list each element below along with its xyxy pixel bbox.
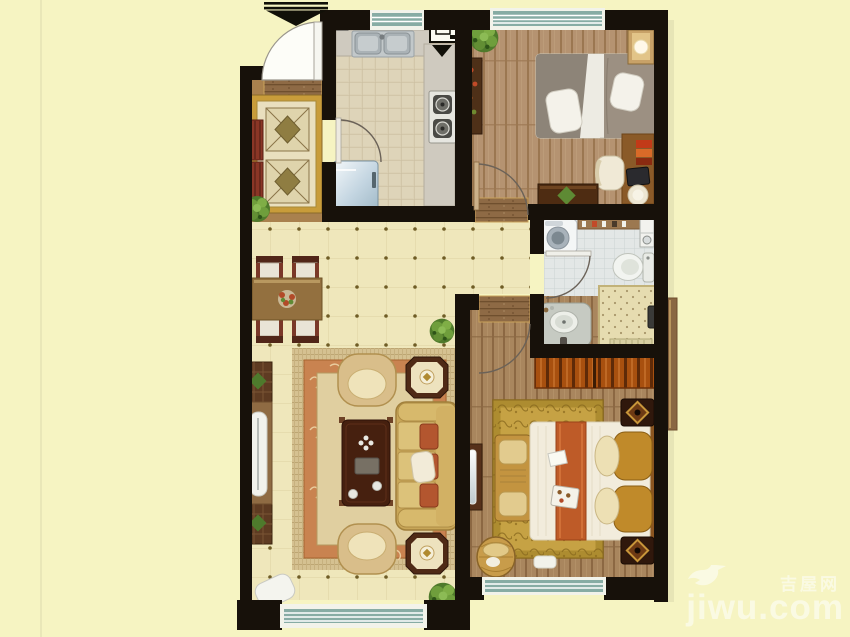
octagonal-lamp-table-north <box>406 357 448 398</box>
corner-washbasin-unit <box>640 219 654 247</box>
dining-chair <box>256 256 283 279</box>
master-bedroom-window <box>482 577 606 595</box>
wall-bathroom-west <box>530 204 544 254</box>
laptop <box>626 167 650 186</box>
refrigerator <box>333 161 378 213</box>
second-bedroom-threshold <box>475 198 528 222</box>
watermark: 吉屋网 jiwu.com <box>686 563 844 623</box>
nightstand-north <box>621 399 654 426</box>
laundry-basket <box>477 537 515 577</box>
wall-master-west <box>455 294 470 600</box>
coffee-table <box>339 417 393 506</box>
cream-pillow <box>595 488 619 524</box>
wall-kitchen-bedroom <box>455 10 472 222</box>
toilet <box>613 253 654 282</box>
sofa <box>396 402 458 530</box>
wall-segment <box>455 294 479 310</box>
books <box>636 140 652 148</box>
foot-bench <box>495 435 531 521</box>
living-plant-east <box>430 319 455 344</box>
pillow <box>545 88 584 135</box>
second-bedroom-window <box>490 8 605 30</box>
cream-pillow <box>595 436 619 476</box>
double-sink <box>352 31 414 57</box>
dining-chair <box>292 320 319 343</box>
throw-pillow <box>410 451 436 484</box>
floor-plan-page: 吉屋网 jiwu.com <box>0 0 850 637</box>
wall-foyer-kitchen <box>322 10 336 120</box>
gold-pillow <box>614 432 652 480</box>
master-bedroom-threshold <box>479 296 530 322</box>
double-bed <box>530 422 656 540</box>
dove-bird-icon <box>686 563 728 593</box>
dining-chair <box>292 256 319 279</box>
wall-bathroom-south <box>530 344 654 358</box>
entry-door <box>262 22 322 80</box>
floor-plan-svg <box>0 0 850 637</box>
wall-left-exterior <box>240 66 252 630</box>
corner-wardrobe <box>628 30 654 64</box>
wall-segment <box>455 577 484 600</box>
living-room-window <box>280 604 427 628</box>
vanity-sink <box>539 303 591 347</box>
watermark-logo-text: jiwu.com <box>686 593 844 623</box>
wall-segment <box>322 206 475 222</box>
armchair-south <box>338 524 396 574</box>
toiletry-shelf <box>578 219 640 229</box>
desk <box>622 134 654 205</box>
shower-mat <box>599 286 658 348</box>
wall-segment <box>424 600 470 630</box>
wall-right-exterior <box>654 10 668 602</box>
flower-centerpiece <box>278 290 296 308</box>
nightstand-south <box>621 537 654 564</box>
wall-segment <box>237 600 282 630</box>
gold-pillow <box>614 486 652 532</box>
wall-segment <box>528 204 668 220</box>
wall-segment <box>240 66 264 80</box>
washing-machine <box>542 219 577 253</box>
dining-chair <box>256 320 283 343</box>
card <box>548 450 567 466</box>
gas-stove <box>429 91 456 143</box>
armchair-north <box>338 354 396 406</box>
entry-foyer <box>244 95 322 222</box>
single-bed <box>536 54 656 138</box>
kitchen-window <box>370 10 424 30</box>
breakfast-tray <box>551 485 580 508</box>
octagonal-lamp-table-south <box>406 533 448 574</box>
wall-segment <box>604 577 668 600</box>
floor-mat <box>534 556 556 568</box>
desk-chair <box>596 156 624 190</box>
